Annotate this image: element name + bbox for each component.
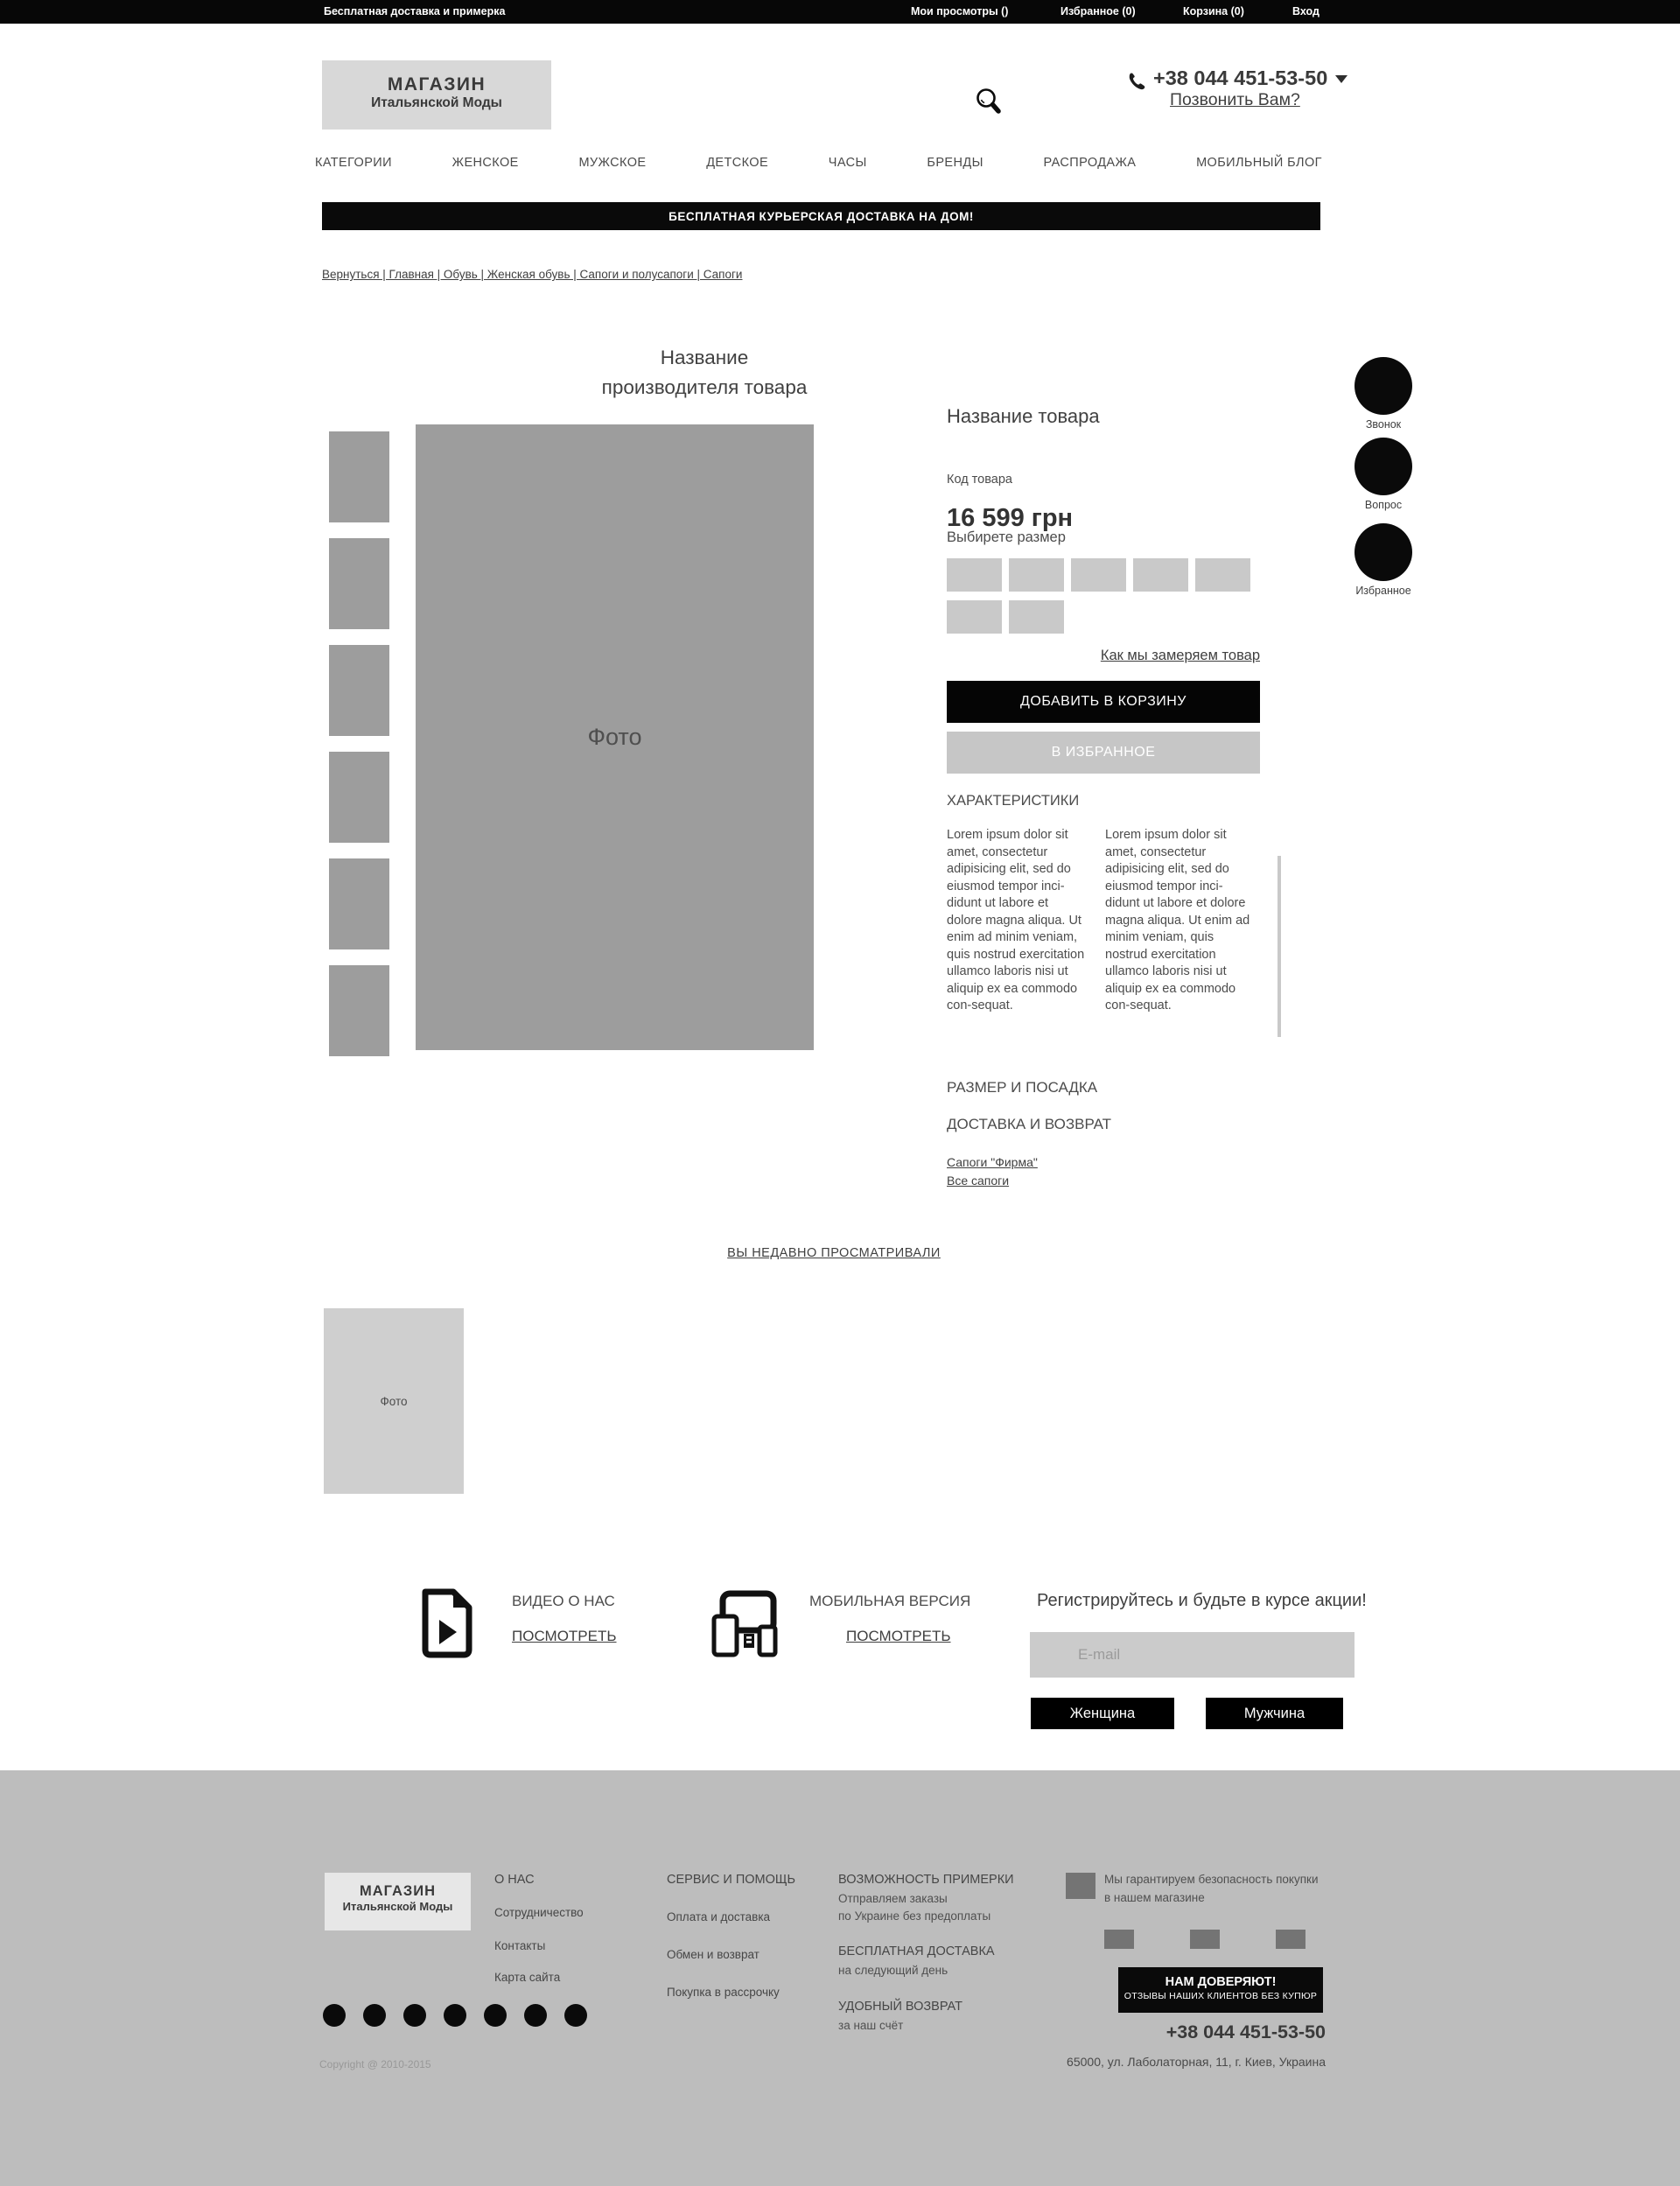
main-nav: КАТЕГОРИИ ЖЕНСКОЕ МУЖСКОЕ ДЕТСКОЕ ЧАСЫ Б… (315, 156, 1322, 170)
footer-logo-line1: МАГАЗИН (325, 1883, 471, 1900)
copyright: Copyright @ 2010-2015 (319, 2058, 431, 2070)
footer-freedelivery-head: БЕСПЛАТНАЯ ДОСТАВКА (838, 1944, 995, 1958)
all-boots-link[interactable]: Все сапоги (947, 1174, 1009, 1188)
recently-viewed-photo[interactable]: Фото (324, 1308, 464, 1494)
size-option-3[interactable] (1071, 558, 1126, 592)
call-circle-label: Звонок (1326, 418, 1440, 431)
gender-male-button[interactable]: Мужчина (1206, 1698, 1343, 1729)
footer (0, 1770, 1680, 2186)
call-circle-button[interactable] (1354, 357, 1412, 415)
nav-item-blog[interactable]: МОБИЛЬНЫЙ БЛОГ (1196, 156, 1322, 170)
specs-text-col1: Lorem ipsum dolor sit amet, consectetur … (947, 827, 1087, 1015)
social-icon-1[interactable] (323, 2004, 346, 2027)
footer-exchange-link[interactable]: Обмен и возврат (667, 1948, 759, 1961)
footer-return-line1: за наш счёт (838, 2019, 903, 2032)
thumbnail-3[interactable] (329, 645, 389, 736)
add-to-favorites-button[interactable]: В ИЗБРАННОЕ (947, 732, 1260, 774)
thumbnail-5[interactable] (329, 858, 389, 949)
product-code-label: Код товара (947, 473, 1012, 487)
footer-fitting-line2: по Украине без предоплаты (838, 1909, 990, 1923)
phone-icon (1127, 72, 1148, 95)
thumbnail-4[interactable] (329, 752, 389, 843)
nav-item-kids[interactable]: ДЕТСКОЕ (706, 156, 768, 170)
social-icon-5[interactable] (484, 2004, 507, 2027)
video-about-us-title: ВИДЕО О НАС (512, 1593, 615, 1610)
thumbnail-6[interactable] (329, 965, 389, 1056)
mobile-version-title: МОБИЛЬНАЯ ВЕРСИЯ (809, 1593, 970, 1610)
footer-address: 65000, ул. Лаболаторная, 11, г. Киев, Ук… (888, 2055, 1326, 2069)
product-brand-title: Название производителя товара (595, 343, 814, 403)
footer-cooperation-link[interactable]: Сотрудничество (494, 1906, 584, 1919)
social-icon-7[interactable] (564, 2004, 587, 2027)
size-option-1[interactable] (947, 558, 1002, 592)
nav-item-watches[interactable]: ЧАСЫ (829, 156, 867, 170)
thumbnail-1[interactable] (329, 431, 389, 522)
guarantee-line1: Мы гарантируем безопасность покупки (1104, 1873, 1319, 1886)
footer-freedelivery-line1: на следующий день (838, 1964, 948, 1977)
header-phone-number[interactable]: +38 044 451-53-50 (1153, 67, 1327, 90)
logo-line1: МАГАЗИН (322, 74, 551, 95)
footer-fitting-head: ВОЗМОЖНОСТЬ ПРИМЕРКИ (838, 1873, 1014, 1887)
favorite-circle-label: Избранное (1326, 585, 1440, 597)
footer-return-head: УДОБНЫЙ ВОЗВРАТ (838, 2000, 962, 2014)
nav-item-brands[interactable]: БРЕНДЫ (927, 156, 983, 170)
size-option-2[interactable] (1009, 558, 1064, 592)
reviews-button[interactable]: НАМ ДОВЕРЯЮТ! ОТЗЫВЫ НАШИХ КЛИЕНТОВ БЕЗ … (1118, 1967, 1323, 2013)
footer-contacts-link[interactable]: Контакты (494, 1939, 545, 1952)
video-watch-link[interactable]: ПОСМОТРЕТЬ (512, 1628, 617, 1645)
social-icon-2[interactable] (363, 2004, 386, 2027)
logo-line2: Итальянской Моды (322, 95, 551, 111)
social-icon-3[interactable] (403, 2004, 426, 2027)
question-circle-label: Вопрос (1326, 499, 1440, 511)
delivery-banner: БЕСПЛАТНАЯ КУРЬЕРСКАЯ ДОСТАВКА НА ДОМ! (322, 202, 1320, 230)
topbar-views-link[interactable]: Мои просмотры () (911, 0, 1008, 24)
payment-icon-1 (1104, 1930, 1134, 1949)
specs-text-col2: Lorem ipsum dolor sit amet, consectetur … (1105, 827, 1254, 1015)
mobile-watch-link[interactable]: ПОСМОТРЕТЬ (846, 1628, 951, 1645)
store-logo[interactable]: МАГАЗИН Итальянской Моды (322, 60, 551, 130)
size-option-7[interactable] (1009, 600, 1064, 634)
video-document-icon[interactable] (418, 1588, 474, 1658)
signup-title: Регистрируйтесь и будьте в курсе акции! (1037, 1591, 1367, 1611)
specs-title: ХАРАКТЕРИСТИКИ (947, 793, 1079, 809)
size-option-5[interactable] (1195, 558, 1250, 592)
product-name: Название товара (947, 405, 1100, 428)
guarantee-line2: в нашем магазине (1104, 1891, 1205, 1904)
specs-scrollbar[interactable] (1277, 856, 1281, 1037)
footer-payment-link[interactable]: Оплата и доставка (667, 1910, 770, 1923)
nav-item-sale[interactable]: РАСПРОДАЖА (1044, 156, 1137, 170)
gender-female-button[interactable]: Женщина (1031, 1698, 1174, 1729)
footer-installments-link[interactable]: Покупка в рассрочку (667, 1986, 780, 1999)
recently-viewed-link[interactable]: ВЫ НЕДАВНО ПРОСМАТРИВАЛИ (727, 1246, 941, 1260)
footer-logo[interactable]: МАГАЗИН Итальянской Моды (325, 1873, 471, 1930)
size-select-label: Выбирете размер (947, 529, 1066, 546)
product-photo[interactable]: Фото (416, 424, 814, 1050)
size-option-4[interactable] (1133, 558, 1188, 592)
question-circle-button[interactable] (1354, 438, 1412, 495)
add-to-cart-button[interactable]: ДОБАВИТЬ В КОРЗИНУ (947, 681, 1260, 723)
footer-sitemap-link[interactable]: Карта сайта (494, 1971, 560, 1984)
delivery-and-return-link[interactable]: ДОСТАВКА И ВОЗВРАТ (947, 1116, 1111, 1133)
favorite-circle-button[interactable] (1354, 523, 1412, 581)
size-and-fit-link[interactable]: РАЗМЕР И ПОСАДКА (947, 1079, 1097, 1097)
chevron-down-icon[interactable] (1335, 75, 1347, 83)
call-me-link[interactable]: Позвонить Вам? (1170, 90, 1300, 110)
breadcrumb[interactable]: Вернуться | Главная | Обувь | Женская об… (322, 268, 742, 281)
topbar-login-link[interactable]: Вход (1292, 0, 1319, 24)
top-bar: Бесплатная доставка и примерка Мои просм… (0, 0, 1680, 24)
guarantee-icon (1066, 1873, 1095, 1899)
reviews-button-line2: ОТЗЫВЫ НАШИХ КЛИЕНТОВ БЕЗ КУПЮР (1118, 1991, 1323, 2001)
search-icon[interactable] (973, 86, 1004, 119)
social-icon-6[interactable] (524, 2004, 547, 2027)
nav-item-women[interactable]: ЖЕНСКОЕ (452, 156, 519, 170)
brand-boots-link[interactable]: Сапоги "Фирма" (947, 1155, 1038, 1169)
page: Бесплатная доставка и примерка Мои просм… (0, 0, 1680, 2186)
payment-icon-2 (1190, 1930, 1220, 1949)
how-we-measure-link[interactable]: Как мы замеряем товар (1101, 648, 1260, 663)
footer-fitting-line1: Отправляем заказы (838, 1892, 948, 1905)
footer-about-head[interactable]: О НАС (494, 1873, 535, 1887)
email-input[interactable] (1030, 1632, 1354, 1678)
thumbnail-2[interactable] (329, 538, 389, 629)
size-option-6[interactable] (947, 600, 1002, 634)
footer-logo-line2: Итальянской Моды (325, 1900, 471, 1913)
payment-icon-3 (1276, 1930, 1305, 1949)
topbar-favorites-link[interactable]: Избранное (0) (1060, 0, 1136, 24)
nav-item-categories[interactable]: КАТЕГОРИИ (315, 156, 392, 170)
topbar-promo-link[interactable]: Бесплатная доставка и примерка (324, 0, 505, 24)
reviews-button-line1: НАМ ДОВЕРЯЮТ! (1118, 1975, 1323, 1989)
mobile-devices-icon[interactable] (709, 1588, 784, 1658)
footer-phone-number[interactable]: +38 044 451-53-50 (976, 2021, 1326, 2043)
footer-service-head[interactable]: СЕРВИС И ПОМОЩЬ (667, 1873, 795, 1887)
social-icon-4[interactable] (444, 2004, 466, 2027)
nav-item-men[interactable]: МУЖСКОЕ (578, 156, 646, 170)
topbar-cart-link[interactable]: Корзина (0) (1183, 0, 1244, 24)
